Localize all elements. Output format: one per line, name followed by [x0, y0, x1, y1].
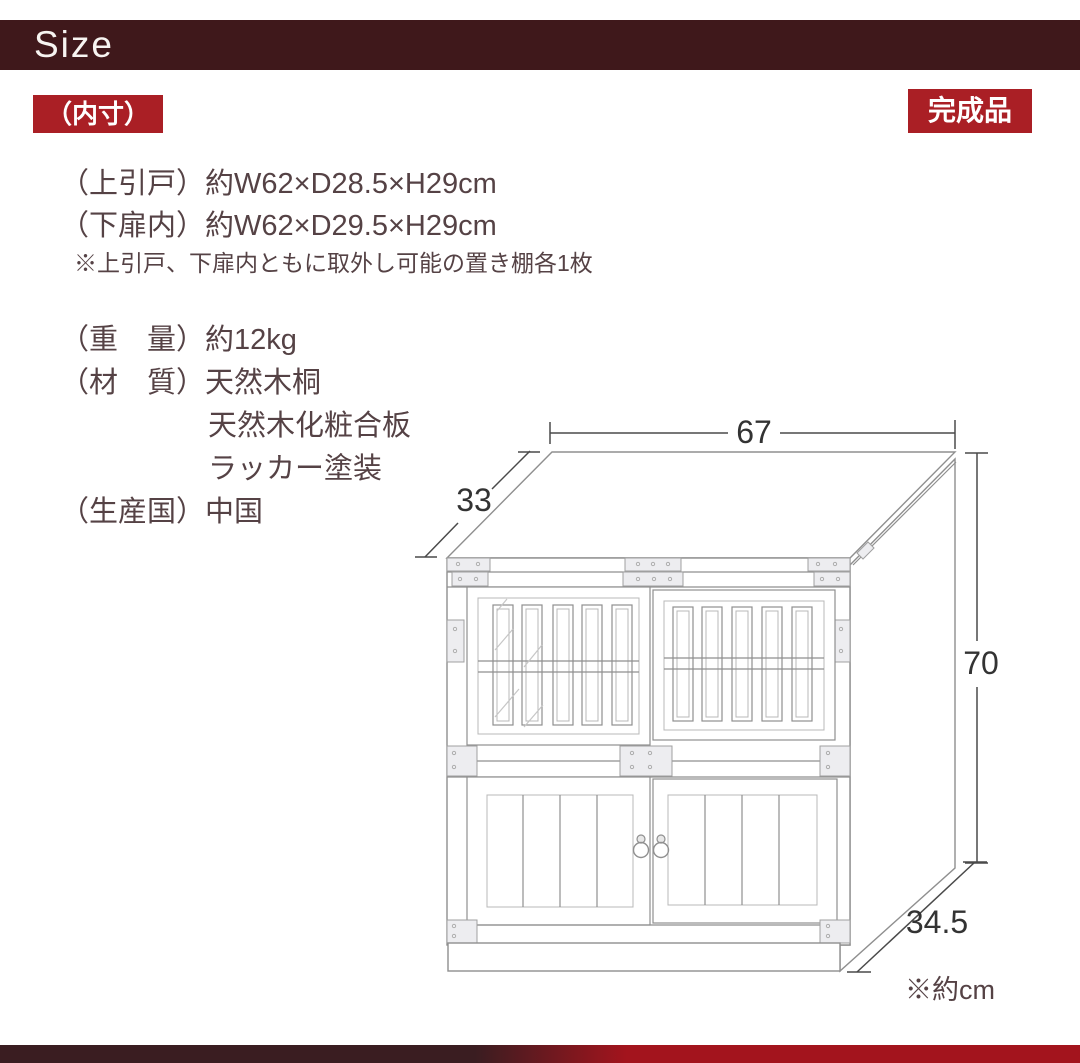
lower-door-left — [467, 777, 650, 925]
cabinet-plinth — [448, 943, 840, 971]
footer-accent-bar — [0, 1045, 1080, 1063]
dim-depth-top-label: 33 — [456, 482, 492, 518]
spec-country: （生産国）中国 — [60, 488, 263, 530]
header-bar: Size — [0, 20, 1080, 70]
spec-material-1: （材 質）天然木桐 — [60, 359, 321, 401]
dimension-height: 70 — [963, 453, 999, 863]
dim-height-label: 70 — [963, 645, 999, 681]
lower-door-right — [653, 779, 837, 923]
upper-sliding-door-left — [467, 587, 650, 745]
dimension-width: 67 — [550, 415, 955, 450]
dim-width-label: 67 — [736, 415, 772, 450]
spec-weight: （重 量）約12kg — [60, 316, 297, 358]
dim-depth-bottom-label: 34.5 — [906, 904, 968, 940]
spec-material-2: 天然木化粧合板 — [208, 402, 411, 444]
finished-product-badge: 完成品 — [908, 89, 1032, 133]
inner-dimension-badge: （内寸） — [33, 95, 163, 133]
spec-upper-door: （上引戸）約W62×D28.5×H29cm — [60, 160, 497, 202]
unit-note: ※約cm — [905, 975, 995, 1005]
spec-shelf-note: ※上引戸、下扉内ともに取外し可能の置き棚各1枚 — [74, 244, 593, 278]
page-title: Size — [34, 20, 114, 70]
spec-material-3: ラッカー塗装 — [208, 445, 382, 487]
spec-lower-door: （下扉内）約W62×D29.5×H29cm — [60, 202, 497, 244]
cabinet-size-diagram: 67 33 70 34.5 ※約cm — [410, 415, 1030, 1035]
upper-sliding-door-right — [653, 590, 835, 740]
page: Size （内寸） 完成品 （上引戸）約W62×D28.5×H29cm （下扉内… — [0, 0, 1080, 1063]
